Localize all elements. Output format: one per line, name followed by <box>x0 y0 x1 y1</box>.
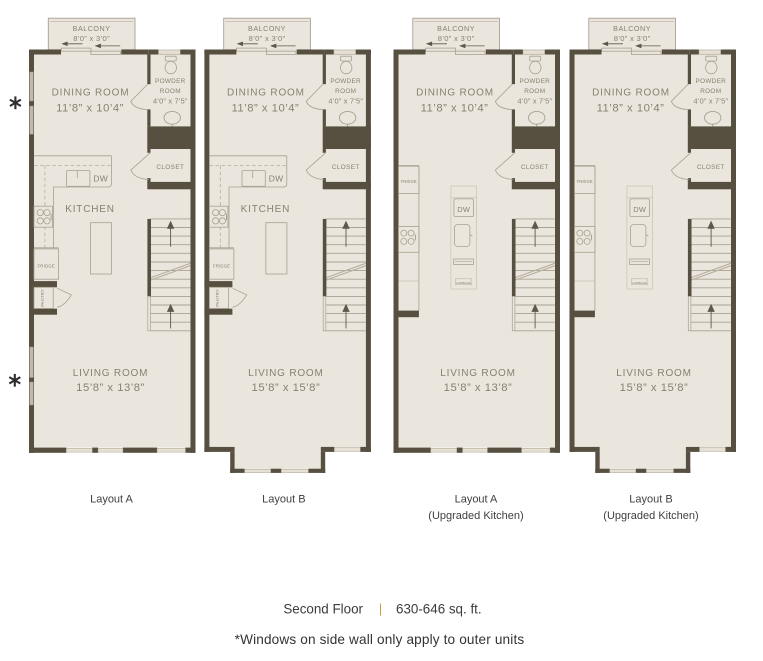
svg-text:DINING ROOM: DINING ROOM <box>592 87 670 98</box>
svg-text:FRIDGE: FRIDGE <box>401 179 417 184</box>
svg-text:Layout A: Layout A <box>455 494 498 506</box>
svg-text:11’8” x 10’4”: 11’8” x 10’4” <box>597 103 665 115</box>
svg-text:630-646 sq. ft.: 630-646 sq. ft. <box>396 602 482 617</box>
svg-text:(Upgraded Kitchen): (Upgraded Kitchen) <box>428 510 523 522</box>
svg-text:LIVING ROOM: LIVING ROOM <box>248 368 323 379</box>
svg-text:*Windows on side wall only app: *Windows on side wall only apply to oute… <box>235 632 525 647</box>
svg-text:POWDER: POWDER <box>330 78 361 85</box>
svg-text:BALCONY: BALCONY <box>73 24 111 33</box>
svg-text:FRIDGE: FRIDGE <box>213 264 230 269</box>
svg-text:CLOSET: CLOSET <box>521 164 549 171</box>
svg-text:Layout B: Layout B <box>262 494 305 506</box>
svg-text:11’8” x 10’4”: 11’8” x 10’4” <box>56 103 124 115</box>
svg-text:BALCONY: BALCONY <box>248 24 286 33</box>
svg-text:GARBAGE: GARBAGE <box>632 281 647 285</box>
svg-text:4’0” x 7’5”: 4’0” x 7’5” <box>153 96 188 105</box>
svg-text:4’0” x 7’5”: 4’0” x 7’5” <box>328 96 363 105</box>
svg-text:|: | <box>379 602 382 616</box>
svg-text:DINING ROOM: DINING ROOM <box>416 87 494 98</box>
svg-text:LIVING ROOM: LIVING ROOM <box>73 368 148 379</box>
svg-text:15’8” x 13’8”: 15’8” x 13’8” <box>76 382 145 394</box>
svg-text:DW: DW <box>633 205 647 214</box>
svg-text:DINING ROOM: DINING ROOM <box>227 87 305 98</box>
svg-text:8’0” x 3’0”: 8’0” x 3’0” <box>73 34 110 43</box>
svg-text:CLOSET: CLOSET <box>332 164 360 171</box>
svg-text:15’8” x 13’8”: 15’8” x 13’8” <box>444 382 513 394</box>
svg-text:4’0” x 7’5”: 4’0” x 7’5” <box>693 96 728 105</box>
svg-text:LIVING ROOM: LIVING ROOM <box>440 368 515 379</box>
svg-text:LIVING ROOM: LIVING ROOM <box>616 368 691 379</box>
svg-text:4’0” x 7’5”: 4’0” x 7’5” <box>517 96 552 105</box>
svg-text:BALCONY: BALCONY <box>437 24 475 33</box>
svg-text:GARBAGE: GARBAGE <box>456 281 471 285</box>
svg-text:CLOSET: CLOSET <box>697 164 725 171</box>
svg-text:8’0” x 3’0”: 8’0” x 3’0” <box>438 34 475 43</box>
svg-text:POWDER: POWDER <box>155 78 186 85</box>
svg-text:DW: DW <box>457 205 471 214</box>
svg-text:FRIDGE: FRIDGE <box>577 179 593 184</box>
svg-text:DW: DW <box>93 173 108 183</box>
svg-text:11’8” x 10’4”: 11’8” x 10’4” <box>421 103 489 115</box>
svg-text:ROOM: ROOM <box>524 88 545 95</box>
svg-text:Second Floor: Second Floor <box>283 602 363 617</box>
svg-text:POWDER: POWDER <box>520 78 551 85</box>
svg-text:15’8” x 15’8”: 15’8” x 15’8” <box>620 382 689 394</box>
svg-text:KITCHEN: KITCHEN <box>241 204 291 215</box>
svg-text:KITCHEN: KITCHEN <box>65 204 115 215</box>
svg-text:DW: DW <box>269 173 284 183</box>
svg-text:PANTRY: PANTRY <box>215 289 220 307</box>
svg-text:FRIDGE: FRIDGE <box>37 264 54 269</box>
svg-text:ROOM: ROOM <box>160 88 181 95</box>
svg-text:15’8” x 15’8”: 15’8” x 15’8” <box>252 382 321 394</box>
svg-text:8’0” x 3’0”: 8’0” x 3’0” <box>249 34 286 43</box>
svg-text:CLOSET: CLOSET <box>156 164 184 171</box>
svg-text:ROOM: ROOM <box>335 88 356 95</box>
svg-text:Layout A: Layout A <box>90 494 133 506</box>
svg-text:8’0” x 3’0”: 8’0” x 3’0” <box>614 34 651 43</box>
svg-text:BALCONY: BALCONY <box>613 24 651 33</box>
svg-text:DINING ROOM: DINING ROOM <box>52 87 130 98</box>
svg-text:POWDER: POWDER <box>696 78 727 85</box>
svg-text:(Upgraded Kitchen): (Upgraded Kitchen) <box>603 510 698 522</box>
svg-text:PANTRY: PANTRY <box>40 289 45 307</box>
svg-text:Layout B: Layout B <box>629 494 672 506</box>
svg-text:ROOM: ROOM <box>700 88 721 95</box>
svg-text:11’8” x 10’4”: 11’8” x 10’4” <box>231 103 299 115</box>
